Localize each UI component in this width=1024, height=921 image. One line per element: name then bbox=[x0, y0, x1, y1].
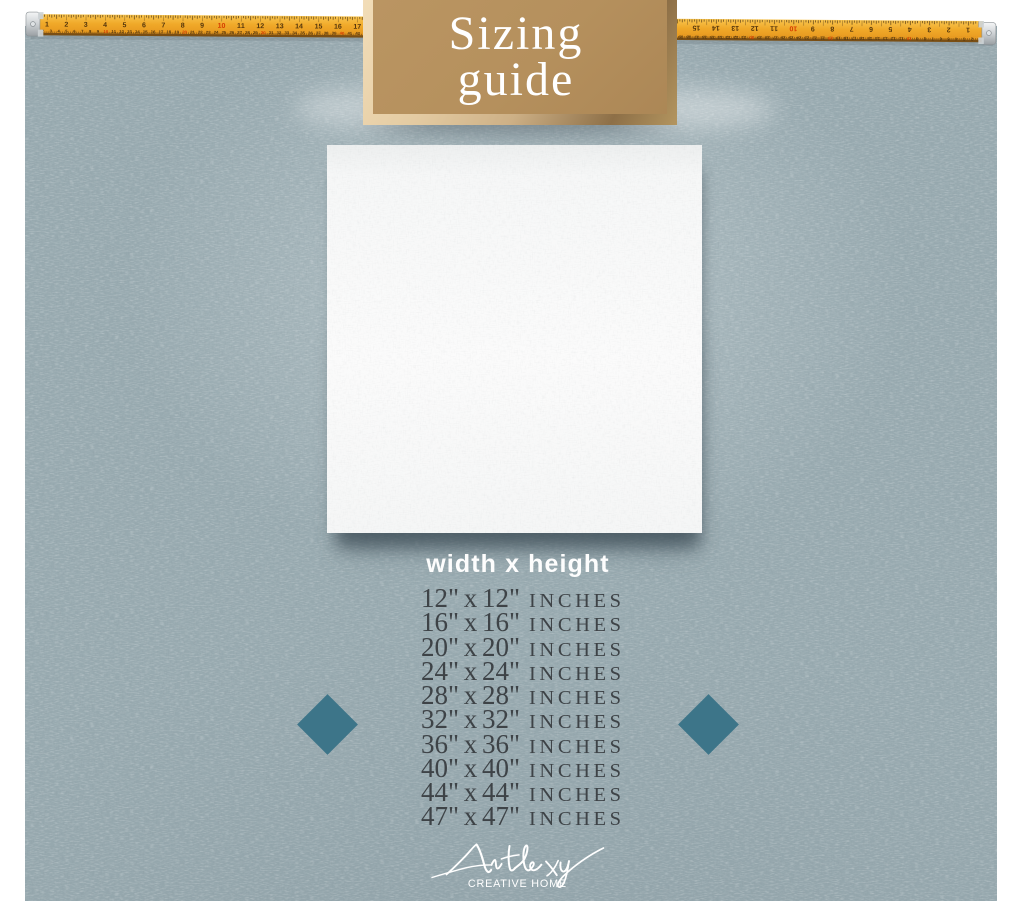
svg-text:CREATIVE HOME: CREATIVE HOME bbox=[468, 878, 567, 890]
svg-text:10: 10 bbox=[789, 24, 797, 31]
svg-text:10: 10 bbox=[218, 23, 226, 30]
